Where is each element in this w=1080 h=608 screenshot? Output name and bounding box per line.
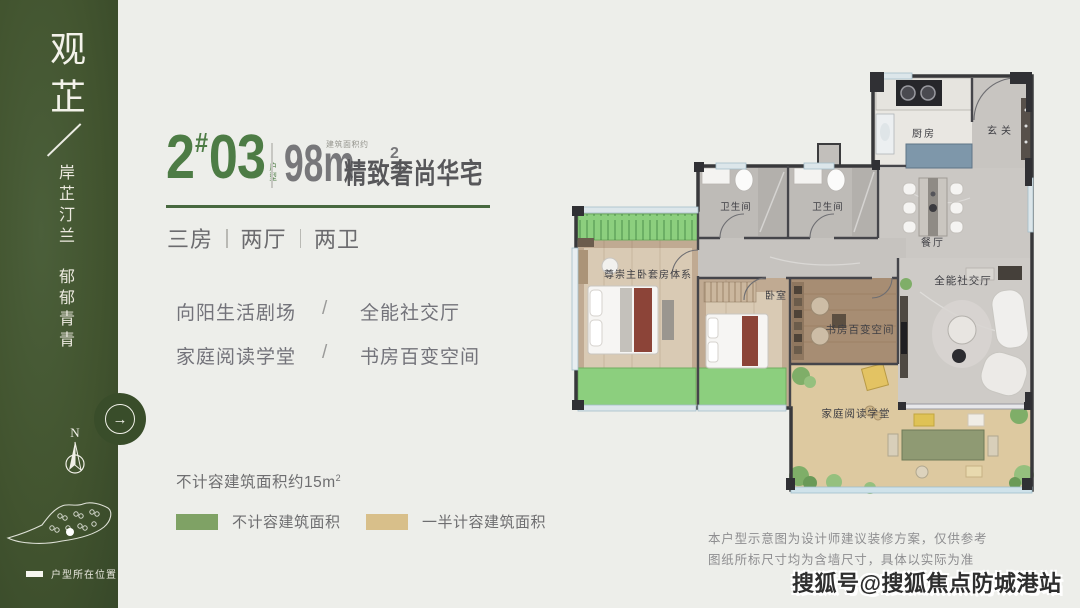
slash-separator: / [322, 342, 327, 364]
area-note: 不计容建筑面积约15m2 [176, 470, 341, 492]
right-arrow-icon: → [105, 404, 135, 434]
room-label-bath1: 卫生间 [720, 201, 752, 213]
room-label-bedroom: 卧室 [765, 289, 787, 302]
room-label-living: 全能社交厅 [934, 274, 992, 287]
spec-halls: 两厅 [241, 222, 287, 254]
compass-icon: N [55, 424, 95, 488]
legend-swatch-green [176, 514, 218, 530]
tagline: 精致奢尚华宅 [344, 152, 483, 192]
slogan-line-2: 郁郁青青 [52, 268, 76, 352]
spec-baths: 两卫 [314, 222, 360, 254]
arrow-button[interactable]: → [94, 393, 146, 445]
legend-item-halfcounted: 一半计容建筑面积 [366, 511, 546, 532]
feature-label: 向阳生活剧场 [176, 298, 296, 325]
disclaimer-line-1: 本户型示意图为设计师建议装修方案，仅供参考 [708, 529, 987, 550]
spec-rooms: 三房 [167, 222, 213, 254]
room-label-dining: 餐厅 [921, 236, 945, 249]
legend-swatch-tan [366, 514, 408, 530]
spec-separator [226, 229, 228, 248]
block-number: 2 [166, 123, 194, 192]
compass-n-label: N [70, 425, 80, 440]
map-unit-location-dot [66, 528, 74, 536]
title-divider [271, 143, 273, 188]
feature-label: 书房百变空间 [360, 342, 480, 369]
hash-sign: # [195, 127, 208, 158]
map-legend-label: 户型所在位置 [51, 566, 117, 581]
brand-sidebar: 观芷 岸芷汀兰 郁郁青青 → N 户型所 [0, 0, 118, 608]
site-map [4, 494, 116, 560]
legend-item-noncounted: 不计容建筑面积 [176, 511, 341, 532]
room-label-study: 书房百变空间 [826, 323, 895, 336]
brand-name: 观芷 [39, 30, 91, 126]
slash-divider-icon [47, 123, 81, 156]
disclaimer: 本户型示意图为设计师建议装修方案，仅供参考 图纸所标尺寸均为含墙尺寸，具体以实际… [708, 529, 987, 571]
floor-plan: 厨房 玄关 卫生间 卫生间 餐厅 尊崇主卧套房体系 卧室 书房百变空间 全能社交… [570, 62, 1045, 520]
room-label-terrace: 家庭阅读学堂 [822, 407, 891, 420]
map-legend: 户型所在位置 [26, 566, 117, 581]
legend-label: 一半计容建筑面积 [422, 511, 546, 532]
room-label-bath2: 卫生间 [812, 201, 844, 213]
green-rule [166, 205, 490, 208]
map-buildings [50, 510, 99, 532]
room-label-entry: 玄关 [987, 124, 1015, 137]
legend-label: 不计容建筑面积 [232, 511, 341, 532]
slogan-line-1: 岸芷汀兰 [52, 164, 76, 248]
unit-title: 2#03户型 [166, 128, 279, 188]
layout-spec: 三房 两厅 两卫 [167, 222, 360, 254]
unit-type-label: 户型 [268, 162, 279, 182]
page: 观芷 岸芷汀兰 郁郁青青 → N 户型所 [0, 0, 1080, 608]
map-legend-swatch [26, 571, 43, 577]
area-note-sup: 2 [336, 473, 342, 483]
slash-separator: / [322, 298, 327, 320]
feature-label: 家庭阅读学堂 [176, 342, 296, 369]
unit-number: 03 [209, 123, 265, 192]
room-label-kitchen: 厨房 [912, 127, 936, 140]
feature-label: 全能社交厅 [360, 298, 460, 325]
room-label-master: 尊崇主卧套房体系 [604, 268, 692, 281]
watermark: 搜狐号@搜狐焦点防城港站 [792, 566, 1061, 598]
spec-separator [300, 229, 302, 248]
